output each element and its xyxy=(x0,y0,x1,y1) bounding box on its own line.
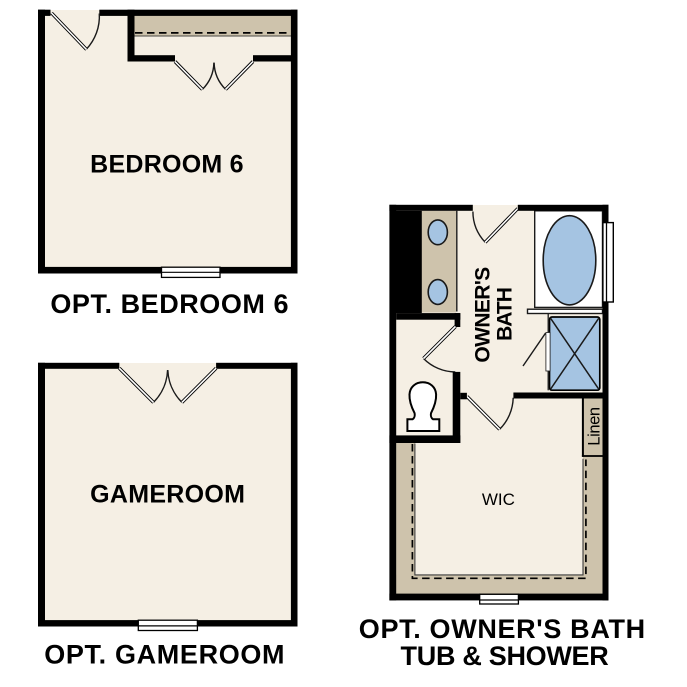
svg-text:GAMEROOM: GAMEROOM xyxy=(90,481,245,509)
svg-text:OPT. GAMEROOM: OPT. GAMEROOM xyxy=(44,640,285,670)
svg-text:OPT. BEDROOM 6: OPT. BEDROOM 6 xyxy=(50,289,289,319)
svg-text:BATH: BATH xyxy=(493,288,516,341)
svg-text:OPT. OWNER'S BATH: OPT. OWNER'S BATH xyxy=(359,614,646,644)
svg-text:BEDROOM 6: BEDROOM 6 xyxy=(90,151,244,179)
svg-text:Linen: Linen xyxy=(585,407,603,446)
svg-text:WIC: WIC xyxy=(482,490,515,509)
svg-text:OWNER'S: OWNER'S xyxy=(472,267,495,363)
svg-text:TUB & SHOWER: TUB & SHOWER xyxy=(401,641,609,671)
